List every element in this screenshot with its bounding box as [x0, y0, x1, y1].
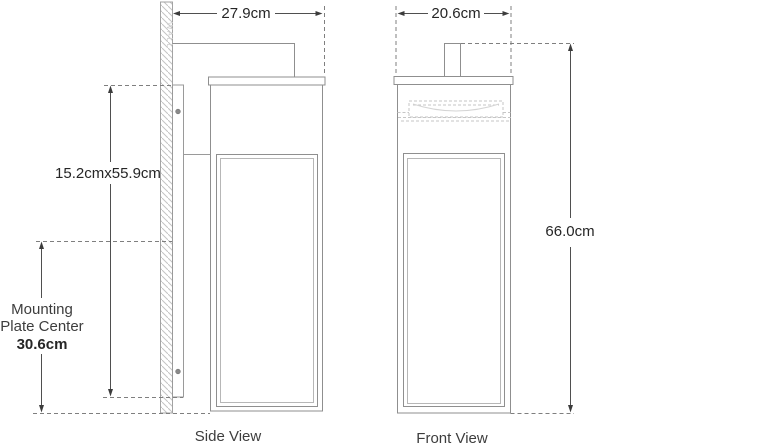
- mounting-center-label-line1: Mounting: [11, 301, 73, 318]
- wall-hatch: WALL: [161, 2, 175, 413]
- side-top-plate: [209, 77, 326, 85]
- dimension-mounting-center: Mounting Plate Center 30.6cm: [0, 242, 172, 413]
- mounting-center-label-line2: Plate Center: [0, 318, 83, 335]
- dimension-diagram: WALL: [0, 0, 764, 447]
- side-panel-inner: [221, 159, 314, 403]
- side-view-label: Side View: [195, 428, 262, 445]
- lamp-detail: [398, 101, 514, 121]
- front-view-drawing: [394, 44, 513, 414]
- backplate-dimension-label: 15.2cmx55.9cm: [55, 165, 161, 182]
- front-panel-inner: [408, 159, 501, 404]
- side-view-drawing: WALL: [161, 2, 326, 413]
- front-body: [398, 85, 511, 414]
- side-panel-outer: [217, 155, 318, 407]
- front-arm: [445, 44, 461, 78]
- wall-label: WALL: [165, 22, 174, 50]
- side-mounting-plate: [173, 85, 211, 397]
- sconce-dimension-drawing: WALL: [0, 0, 764, 447]
- front-panel-outer: [404, 154, 505, 407]
- dimension-side-top-width: 27.9cm: [173, 5, 325, 76]
- front-view-label: Front View: [416, 430, 488, 447]
- side-arm: [173, 44, 295, 78]
- side-width-dimension-label: 27.9cm: [221, 5, 270, 22]
- front-top-plate: [394, 77, 513, 85]
- front-width-dimension-label: 20.6cm: [431, 5, 480, 22]
- mounting-center-value: 30.6cm: [17, 336, 68, 353]
- dimension-front-top-width: 20.6cm: [396, 5, 511, 76]
- mounting-screw-bottom: [176, 369, 181, 374]
- dimension-front-height: 66.0cm: [461, 44, 595, 413]
- height-dimension-label: 66.0cm: [545, 223, 594, 240]
- mounting-screw-top: [176, 109, 181, 114]
- side-body: [211, 85, 323, 411]
